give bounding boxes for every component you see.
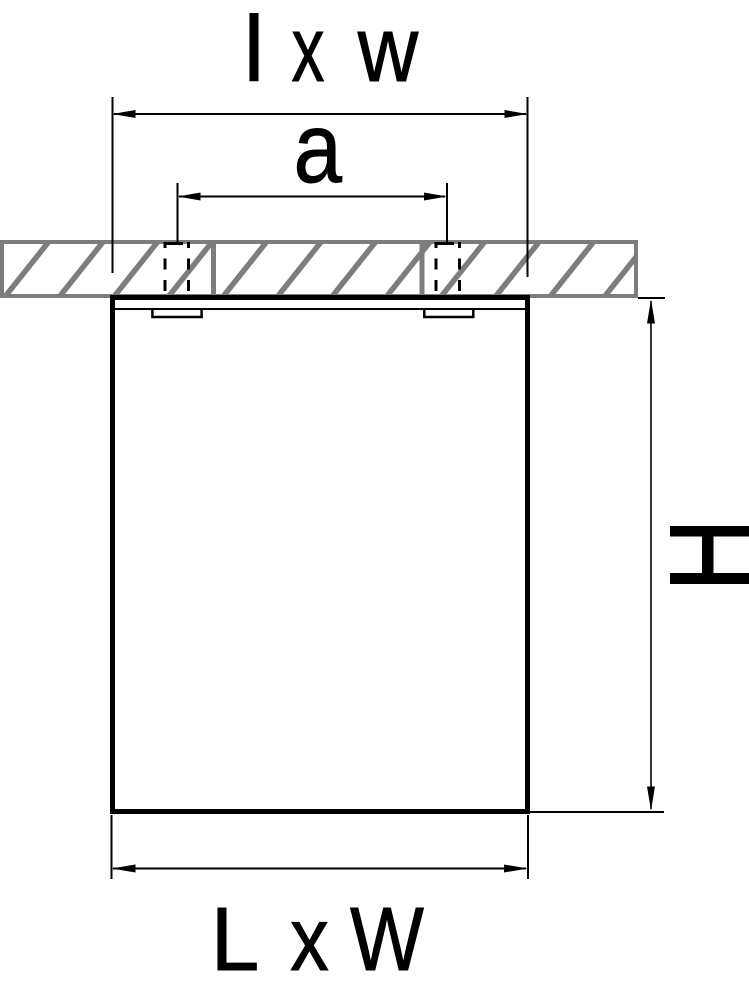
svg-text:l: l: [244, 0, 265, 101]
svg-text:x: x: [291, 0, 324, 102]
svg-text:w: w: [357, 0, 419, 101]
svg-text:x: x: [290, 889, 329, 990]
svg-text:a: a: [293, 93, 342, 203]
svg-text:W: W: [350, 889, 424, 989]
svg-text:L: L: [211, 889, 260, 989]
